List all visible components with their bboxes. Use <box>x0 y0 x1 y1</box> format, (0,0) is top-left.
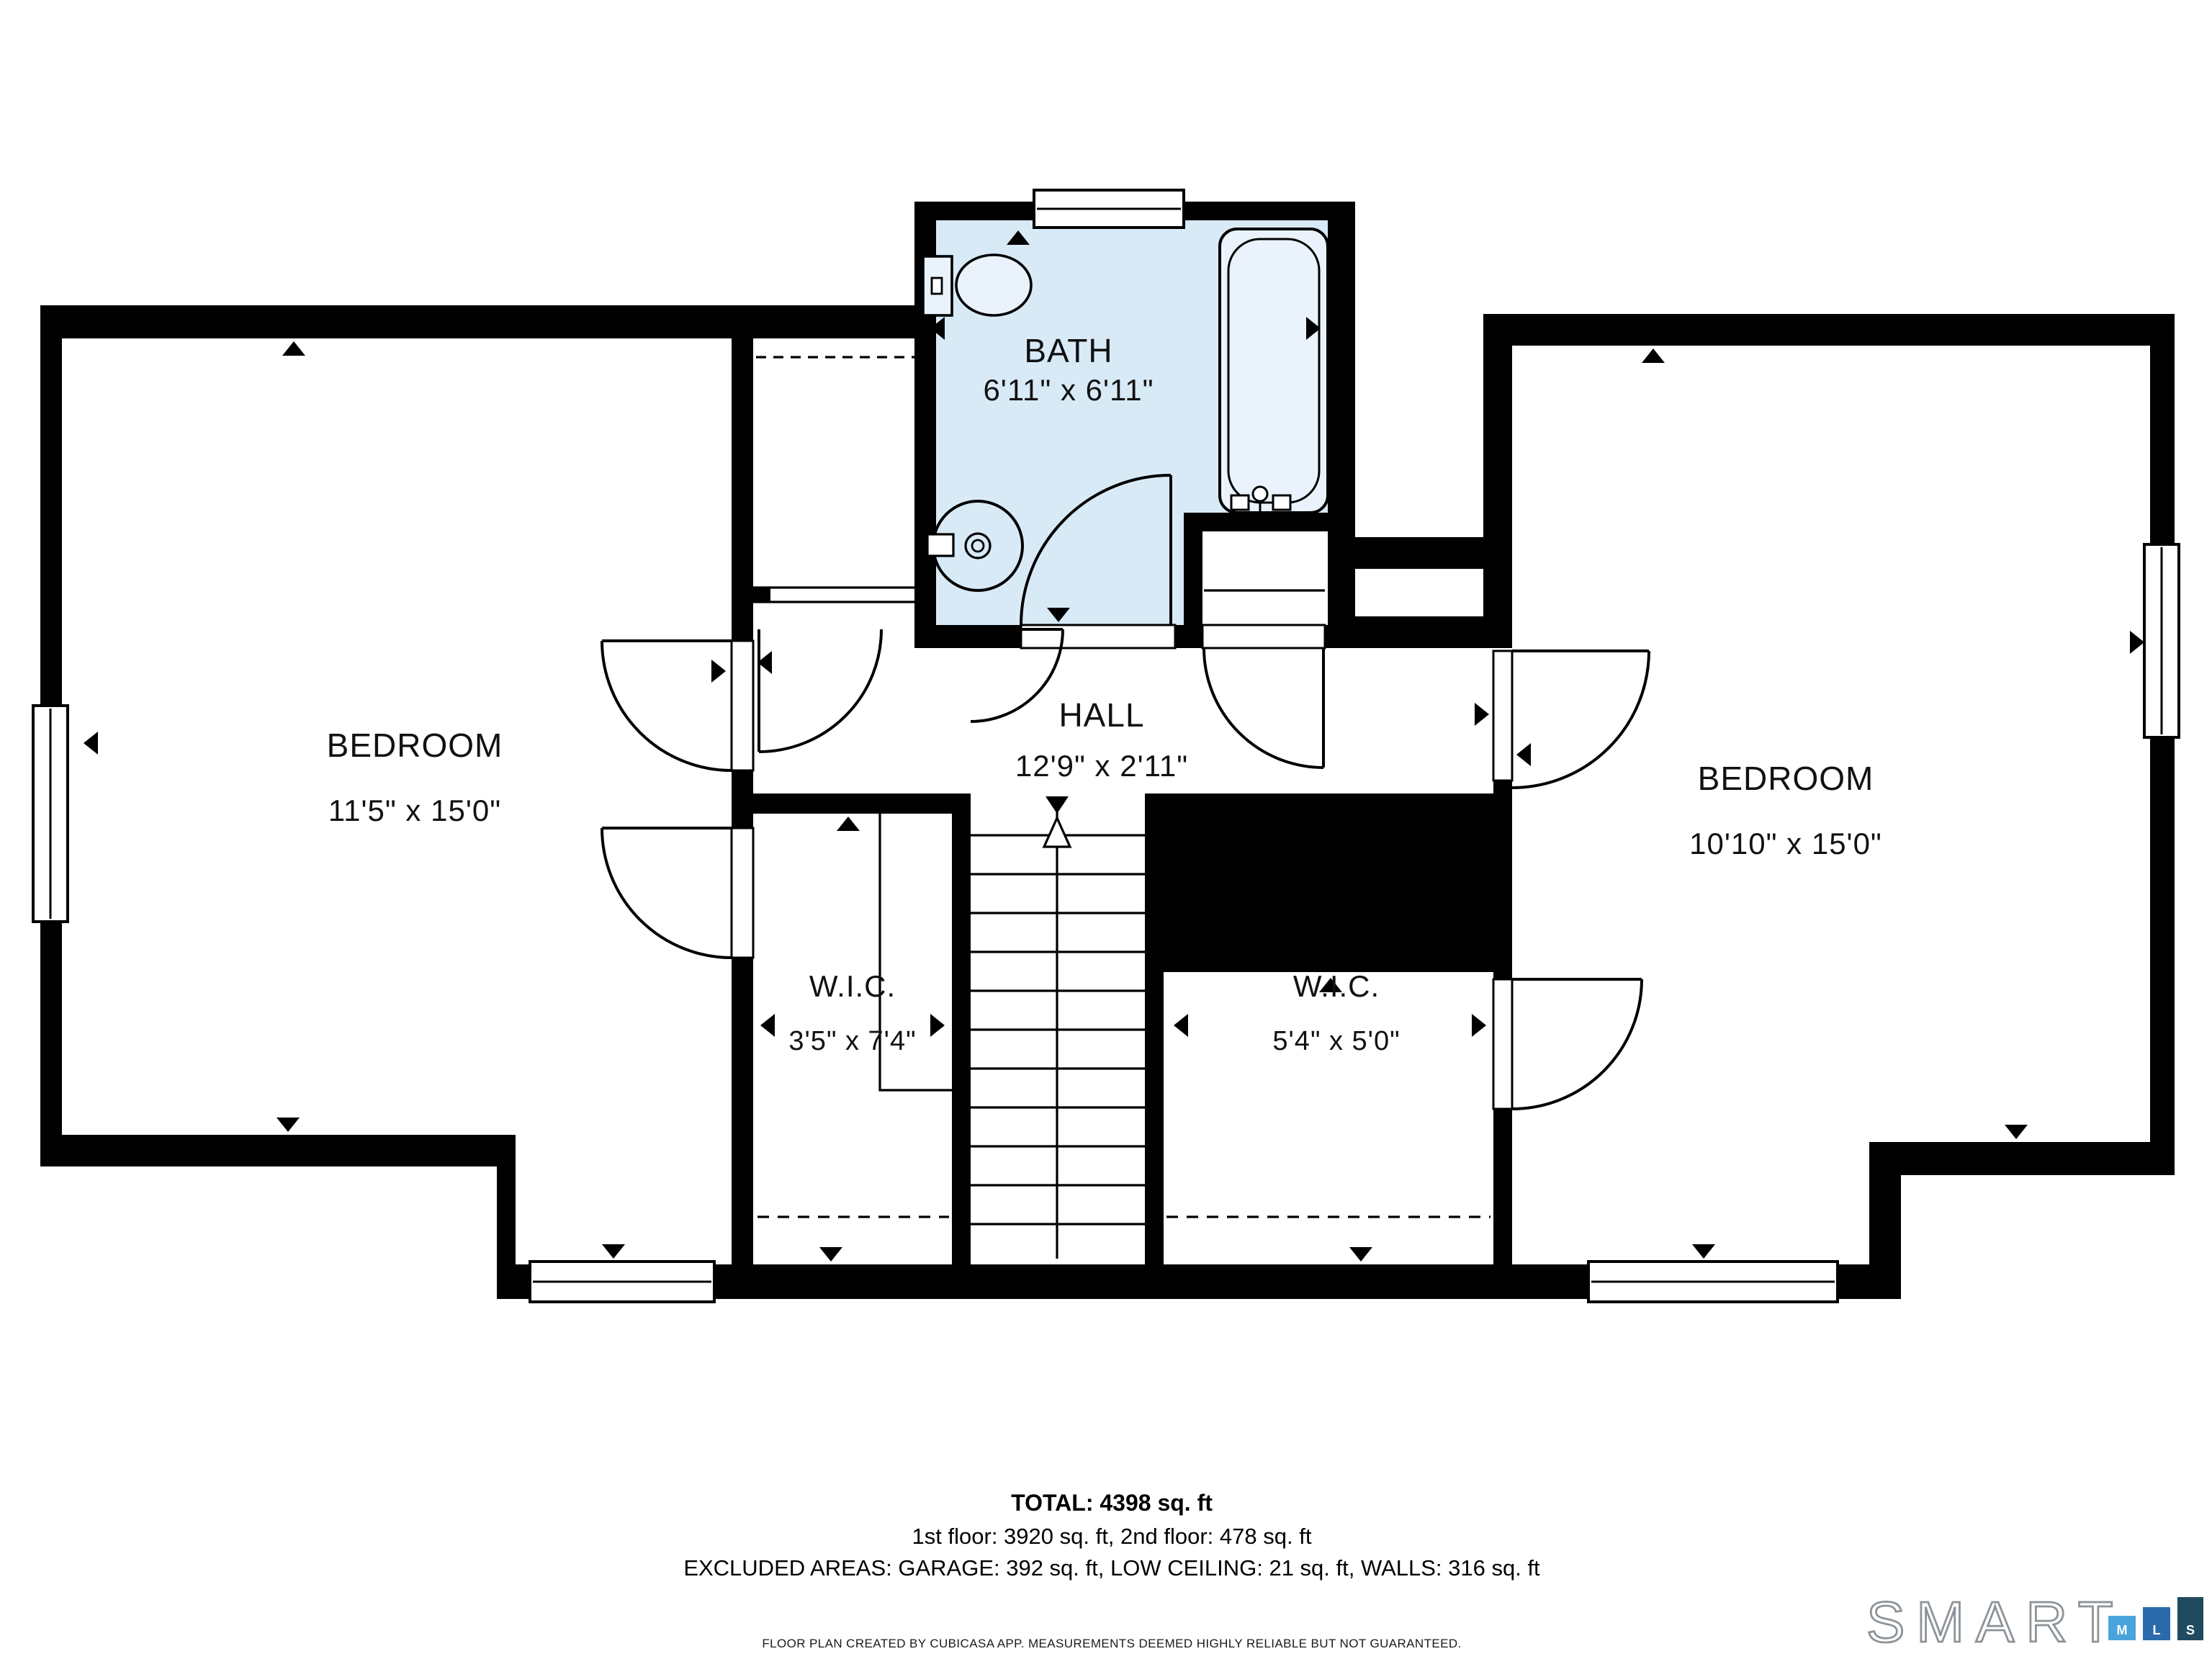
mls-bar-m: M <box>2108 1616 2136 1640</box>
wic-right-label: W.I.C. <box>1293 971 1380 1005</box>
door-landing-hall <box>759 629 881 752</box>
floorplan-canvas: BATH 6'11" x 6'11" HALL 12'9" x 2'11" BE… <box>0 0 2212 1659</box>
door-bedroom-right-hall <box>1512 651 1649 788</box>
toilet-icon <box>923 255 1031 315</box>
door-bedroom-right-wic <box>1512 979 1642 1109</box>
door-bedroom-left-wic <box>602 828 732 958</box>
wic-left-label: W.I.C. <box>809 971 896 1005</box>
doorframe-bedroom-right-hall <box>1493 651 1512 781</box>
floor-areas: 1st floor: 3920 sq. ft, 2nd floor: 478 s… <box>912 1525 1312 1551</box>
doorframe-bedroom-right-wic <box>1493 979 1512 1109</box>
wic-right-dimensions: 5'4" x 5'0" <box>1272 1027 1400 1058</box>
low-ceiling-void <box>1145 793 1512 972</box>
door-closet-hall <box>1204 648 1323 768</box>
hall-label: HALL <box>1058 696 1144 735</box>
wic-left-dimensions: 3'5" x 7'4" <box>788 1027 916 1058</box>
hall-dimensions: 12'9" x 2'11" <box>1015 750 1188 785</box>
total-area: TOTAL: 4398 sq. ft <box>1011 1492 1213 1518</box>
floorplan-page: BATH 6'11" x 6'11" HALL 12'9" x 2'11" BE… <box>0 0 2212 1659</box>
excluded-areas: EXCLUDED AREAS: GARAGE: 392 sq. ft, LOW … <box>683 1557 1539 1583</box>
bathtub-icon <box>1220 229 1328 513</box>
bedroom-left-label: BEDROOM <box>327 727 503 765</box>
mls-bar-l: L <box>2143 1607 2170 1640</box>
smartmls-wordmark: SMART <box>1866 1591 2125 1656</box>
bedroom-left-dimensions: 11'5" x 15'0" <box>328 795 501 829</box>
stairs-direction-arrow <box>1044 818 1070 847</box>
staircase <box>971 801 1145 1259</box>
mls-bar-s: S <box>2177 1597 2203 1640</box>
bedroom-right-dimensions: 10'10" x 15'0" <box>1689 828 1882 863</box>
bath-label: BATH <box>1024 332 1112 371</box>
smartmls-logo: SMART M L S <box>1866 1588 2212 1652</box>
doorframe-bedroom-left-hall <box>732 641 753 770</box>
doorframe-closet <box>1202 625 1325 648</box>
doorframe-bedroom-left-wic <box>732 828 753 958</box>
disclaimer-text: FLOOR PLAN CREATED BY CUBICASA APP. MEAS… <box>762 1636 1461 1650</box>
bath-dimensions: 6'11" x 6'11" <box>983 374 1154 409</box>
bedroom-right-label: BEDROOM <box>1698 760 1874 799</box>
